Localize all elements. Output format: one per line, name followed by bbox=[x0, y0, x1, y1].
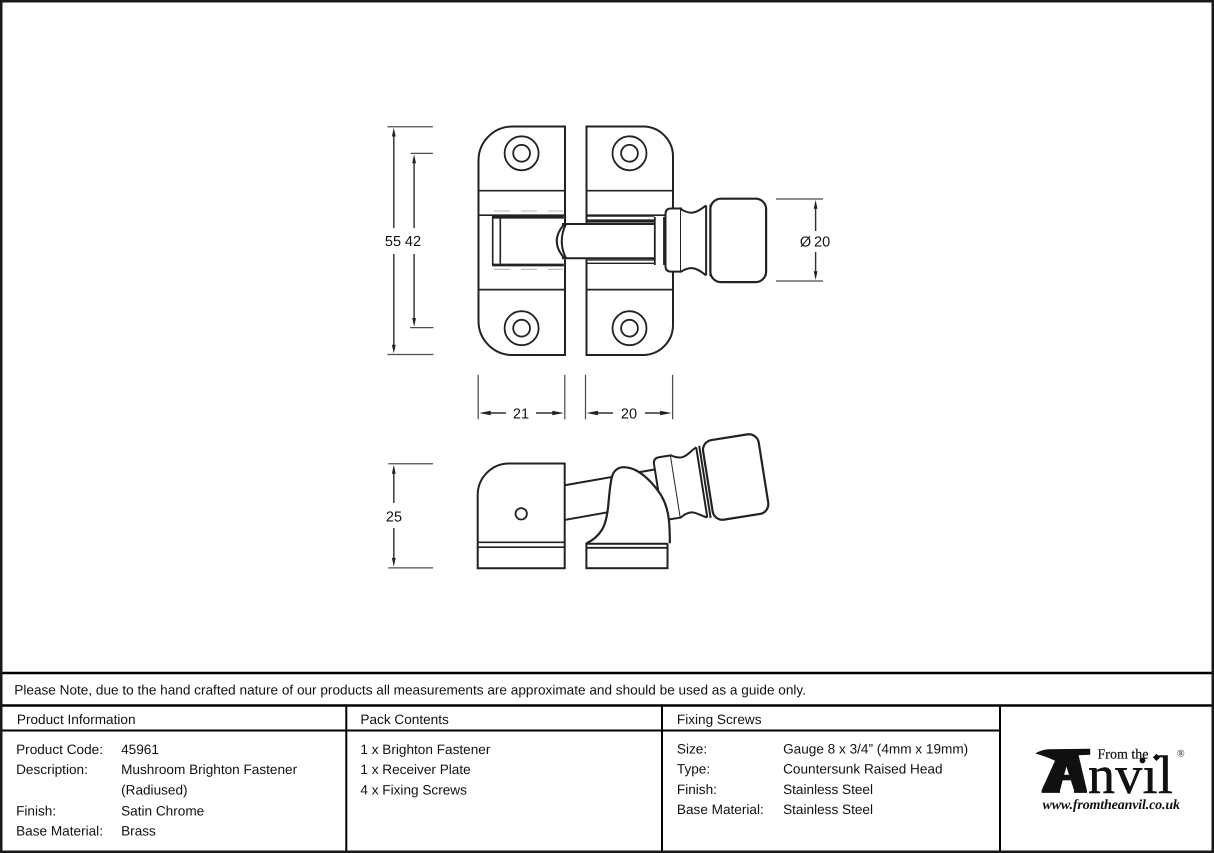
svg-text:Product Code:: Product Code: bbox=[16, 742, 103, 757]
svg-text:Size:: Size: bbox=[677, 742, 707, 757]
svg-text:Stainless Steel: Stainless Steel bbox=[783, 782, 873, 797]
svg-text:(Radiused): (Radiused) bbox=[121, 782, 188, 797]
svg-text:Description:: Description: bbox=[16, 762, 88, 777]
svg-text:Please Note, due to the hand c: Please Note, due to the hand crafted nat… bbox=[14, 683, 806, 698]
svg-text:Ø 20: Ø 20 bbox=[800, 234, 830, 250]
svg-text:From the: From the bbox=[1098, 748, 1149, 763]
svg-text:Satin Chrome: Satin Chrome bbox=[121, 803, 204, 818]
svg-text:www.fromtheanvil.co.uk: www.fromtheanvil.co.uk bbox=[1043, 798, 1181, 813]
svg-text:20: 20 bbox=[621, 406, 637, 422]
svg-text:Countersunk Raised Head: Countersunk Raised Head bbox=[783, 762, 942, 777]
svg-text:Finish:: Finish: bbox=[677, 782, 717, 797]
svg-text:Product Information: Product Information bbox=[17, 712, 136, 727]
svg-text:Brass: Brass bbox=[121, 824, 156, 839]
svg-text:42: 42 bbox=[405, 234, 421, 250]
svg-text:4 x Fixing Screws: 4 x Fixing Screws bbox=[360, 782, 467, 797]
svg-text:Base Material:: Base Material: bbox=[16, 824, 103, 839]
svg-text:®: ® bbox=[1177, 749, 1185, 760]
svg-text:Mushroom Brighton Fastener: Mushroom Brighton Fastener bbox=[121, 762, 298, 777]
svg-text:1 x Receiver Plate: 1 x Receiver Plate bbox=[360, 762, 470, 777]
svg-text:Gauge 8 x 3/4” (4mm x 19mm): Gauge 8 x 3/4” (4mm x 19mm) bbox=[783, 742, 968, 757]
svg-text:55: 55 bbox=[385, 234, 401, 250]
svg-text:Type:: Type: bbox=[677, 762, 710, 777]
svg-text:Finish:: Finish: bbox=[16, 803, 56, 818]
svg-text:1 x Brighton Fastener: 1 x Brighton Fastener bbox=[360, 742, 490, 757]
svg-text:45961: 45961 bbox=[121, 742, 159, 757]
svg-text:Base Material:: Base Material: bbox=[677, 802, 764, 817]
svg-text:Stainless Steel: Stainless Steel bbox=[783, 802, 873, 817]
svg-text:Fixing Screws: Fixing Screws bbox=[677, 712, 762, 727]
svg-text:21: 21 bbox=[513, 406, 529, 422]
svg-text:Pack Contents: Pack Contents bbox=[360, 712, 449, 727]
svg-text:25: 25 bbox=[386, 510, 402, 526]
